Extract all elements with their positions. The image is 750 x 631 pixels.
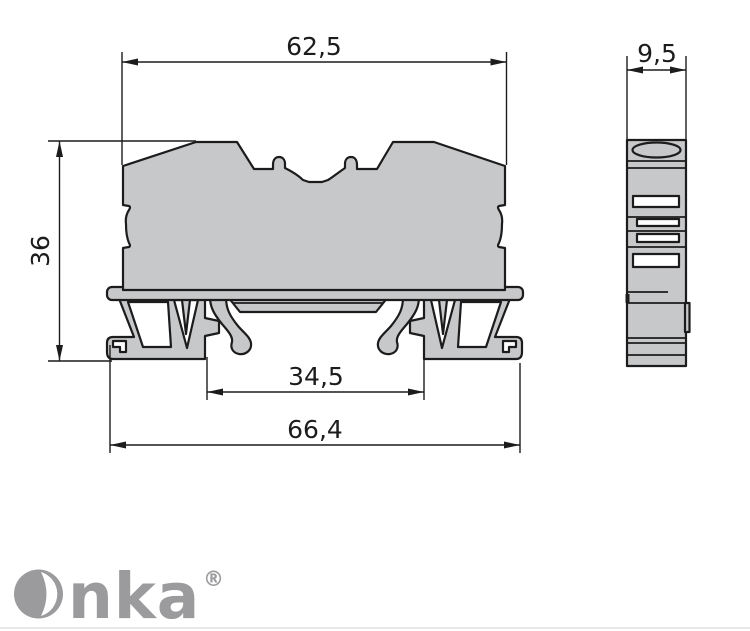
- dimension-label-overall-width: 66,4: [287, 415, 343, 444]
- side-slot-2: [637, 219, 679, 226]
- arrowhead-left: [110, 442, 126, 449]
- drawing-page: 62,5 36 9,5 34,5: [0, 0, 750, 631]
- arrowhead-left: [122, 59, 138, 66]
- dimension-label-thickness: 9,5: [637, 39, 677, 68]
- page-bottom-rule: [0, 627, 750, 629]
- dimension-rail-span: 34,5: [207, 357, 424, 400]
- arrowhead-right: [408, 389, 424, 396]
- arrowhead-up: [56, 141, 63, 157]
- housing-body: [123, 142, 505, 290]
- arrowhead-right: [491, 59, 507, 66]
- technical-drawing: 62,5 36 9,5 34,5: [0, 0, 750, 631]
- arrowhead-left: [207, 389, 223, 396]
- front-view: [107, 142, 523, 359]
- onka-logo: nka ®: [14, 560, 224, 631]
- left-foot: [107, 296, 219, 359]
- side-slot-3: [637, 234, 679, 242]
- logo-text: nka: [68, 560, 200, 631]
- side-slot-4: [633, 254, 679, 267]
- side-slot-1: [633, 196, 679, 207]
- side-view: [626, 140, 690, 366]
- side-right-step: [685, 303, 690, 332]
- dimension-thickness: 9,5: [627, 39, 686, 139]
- arrowhead-right: [504, 442, 520, 449]
- dimension-top-width: 62,5: [122, 32, 507, 165]
- dimension-label-height: 36: [26, 235, 55, 267]
- right-foot: [410, 296, 522, 359]
- registered-trademark-icon: ®: [203, 567, 224, 591]
- dimension-label-rail-span: 34,5: [288, 362, 344, 391]
- dimension-label-top-width: 62,5: [286, 32, 342, 61]
- side-edge-tick: [626, 294, 630, 303]
- right-foot-group: [378, 296, 522, 359]
- arrowhead-down: [56, 345, 63, 361]
- wire-entry-ellipse: [633, 143, 681, 158]
